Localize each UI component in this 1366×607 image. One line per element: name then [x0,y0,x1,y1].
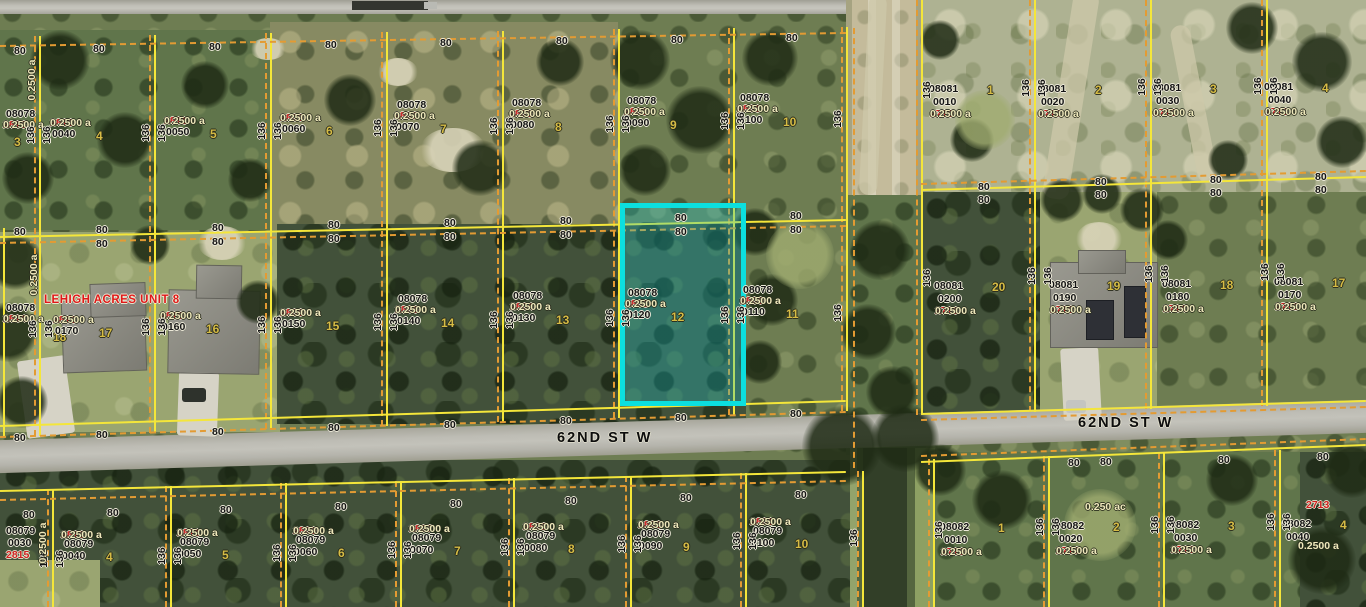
parcel-strap: 08081 [929,84,958,95]
dim-label-136: 136 [1035,518,1046,536]
parcel-area: 0.2500 a [510,302,551,313]
parcel-area: 0.2500 a [1050,305,1091,316]
dim-label-136: 136 [1282,513,1293,531]
dim-label-136: 136 [1276,263,1287,281]
dim-label-80: 80 [795,490,807,501]
parcel-lot-number: 4 [1322,82,1329,94]
dim-label-136: 136 [288,544,299,562]
parcel-lot-number: 19 [1107,280,1120,292]
tree-canopy [914,444,966,496]
parcel-code: 0180 [1166,292,1189,303]
dim-label-136: 136 [1021,79,1032,97]
parcel-area: 0.2500 a [395,305,436,316]
dim-label-136: 136 [1150,516,1161,534]
dim-label-80: 80 [23,510,35,521]
parcel-area: 0.2500 a [1298,541,1339,552]
parcel-area: 0.2500 a [935,306,976,317]
parcel-address: 2815 [6,550,29,561]
dim-label-136: 136 [257,316,268,334]
dim-label-80: 80 [1210,175,1222,186]
parcel-lot-number: 17 [99,327,112,339]
dim-label-136: 136 [387,541,398,559]
dim-label-136: 136 [42,126,53,144]
parcel-area: 0.2500 a [394,111,435,122]
dim-label-80: 80 [1095,190,1107,201]
parcel-area: 0.2500 a [280,308,321,319]
grass-glade [955,90,1015,150]
tree-canopy [840,304,896,360]
dim-label-136: 136 [732,532,743,550]
vehicle [352,1,428,10]
dim-label-136: 136 [403,541,414,559]
parcel-code: 0010 [933,97,956,108]
dim-label-136: 136 [44,320,55,338]
parcel-area: 0.2500 a [941,547,982,558]
dim-label-136: 136 [833,110,844,128]
dim-label-80: 80 [978,182,990,193]
parcel-strap: 08078 [398,294,427,305]
dim-label-80: 80 [560,230,572,241]
dim-label-136: 136 [157,318,168,336]
dim-label-136: 136 [1260,263,1271,281]
dim-label-136: 136 [720,306,731,324]
dim-label-80: 80 [444,218,456,229]
dim-label-136: 136 [1027,267,1038,285]
dim-label-80: 80 [14,227,26,238]
parcel-code: 0170 [55,326,78,337]
parcel-code: 0010 [944,535,967,546]
parcel-code: 0020 [1059,534,1082,545]
parcel-lot-number: 4 [106,551,113,563]
parcel-lot-number: 15 [326,320,339,332]
parcel-lot-number: 6 [338,547,345,559]
dim-label-80: 80 [14,433,26,444]
parcel-area: 0.2500 a [1275,302,1316,313]
dim-label-136: 136 [505,117,516,135]
dim-label-136: 136 [257,122,268,140]
dim-label-136: 136 [1037,79,1048,97]
tree-canopy [866,366,918,418]
tree-canopy [1206,454,1258,506]
parcel-area: 0.2500 a [1265,107,1306,118]
dim-label-80: 80 [1068,458,1080,469]
parcel-strap: 08079 [526,531,555,542]
dim-label-80: 80 [675,413,687,424]
terrain-region [0,560,100,607]
dim-label-136: 136 [605,115,616,133]
parcel-strap: 08078 [6,303,35,314]
dim-label-80: 80 [328,423,340,434]
parcel-strap: 08078 [397,100,426,111]
parcel-strap: 08079 [64,539,93,550]
parcel-area: 0.2500 a [1038,109,1079,120]
parcel-line-v [52,489,54,607]
parcel-code: 0030 [1156,96,1179,107]
tree-canopy [181,61,229,109]
dim-label-136: 136 [922,269,933,287]
dim-label-80: 80 [560,416,572,427]
parcel-line-v [1150,0,1152,409]
parcel-lot-number: 12 [671,311,684,323]
solar-panel [1124,286,1146,338]
dim-label-80: 80 [1095,177,1107,188]
dim-label-136: 136 [141,318,152,336]
parcel-code: 0200 [938,294,961,305]
dim-label-136: 136 [272,544,283,562]
parcel-lot-number: 5 [222,549,229,561]
setback-line-v [916,0,918,415]
house-roof [196,265,243,300]
dim-label-80: 80 [1100,457,1112,468]
dim-label-136: 136 [55,550,66,568]
parcel-code: 0030 [8,538,31,549]
dim-label-80: 80 [335,502,347,513]
dim-label-80: 80 [96,225,108,236]
area-label-rotated: 0.2500 a [29,255,40,296]
dim-label-136: 136 [833,304,844,322]
parcel-area: 0.2500 a [280,113,321,124]
dim-label-136: 136 [273,316,284,334]
dim-label-136: 136 [500,538,511,556]
tree-canopy [1226,2,1278,54]
parcel-lot-number: 11 [786,308,799,320]
dim-label-80: 80 [212,223,224,234]
parcel-strap: 08078 [628,288,657,299]
area-label-rotated: 0.2500 a [38,523,49,564]
dim-label-136: 136 [1137,78,1148,96]
dim-label-136: 136 [28,320,39,338]
parcel-code: 0020 [1041,97,1064,108]
parcel-strap: 08078 [740,93,769,104]
parcel-strap: 08081 [934,281,963,292]
dim-label-136: 136 [617,535,628,553]
dim-label-80: 80 [1218,455,1230,466]
tree-canopy [452,140,508,196]
tree-canopy [920,20,960,60]
parcel-area: 0.2500 a [3,120,44,131]
parcel-area: 0.2500 a [1056,546,1097,557]
misc-area-label: 0.250 ac [1085,502,1126,513]
map-canvas[interactable]: LEHIGH ACRES UNIT 8 62ND ST W 62ND ST W … [0,0,1366,607]
parcel-strap: 08078 [6,109,35,120]
parcel-lot-number: 8 [568,543,575,555]
dim-label-136: 136 [849,529,860,547]
parcel-area: 0.2500 a [1153,108,1194,119]
parcel-lot-number: 1 [987,84,994,96]
dim-label-136: 136 [157,547,168,565]
dim-label-80: 80 [440,38,452,49]
parcel-lot-number: 4 [1340,519,1347,531]
parcel-lot-number: 20 [992,281,1005,293]
parcel-lot-number: 13 [556,314,569,326]
parcel-lot-number: 3 [14,136,21,148]
tree-canopy [1316,116,1366,168]
dim-label-80: 80 [560,216,572,227]
parcel-lot-number: 9 [683,541,690,553]
parcel-line-v [1034,0,1036,412]
parcel-lot-number: 5 [210,128,217,140]
parcel-lot-number: 7 [454,545,461,557]
parcel-code: 0080 [524,543,547,554]
dim-label-136: 136 [1160,265,1171,283]
dim-label-80: 80 [328,220,340,231]
dim-label-80: 80 [790,225,802,236]
parcel-strap: 08079 [6,526,35,537]
dim-label-136: 136 [605,309,616,327]
dim-label-80: 80 [556,36,568,47]
dim-label-136: 136 [621,115,632,133]
dim-label-80: 80 [790,409,802,420]
parcel-code: 0040 [52,129,75,140]
dim-label-136: 136 [1043,267,1054,285]
dim-label-80: 80 [675,227,687,238]
dim-label-80: 80 [212,237,224,248]
dim-label-136: 136 [736,306,747,324]
parcel-lot-number: 1 [998,522,1005,534]
vehicle [424,2,437,9]
parcel-code: 0140 [397,316,420,327]
setback-line-v [1145,0,1147,409]
dim-label-136: 136 [1051,518,1062,536]
dim-label-80: 80 [96,430,108,441]
parcel-code: 0040 [1268,95,1291,106]
parcel-line-v [1266,0,1268,406]
dim-label-80: 80 [220,505,232,516]
dim-label-80: 80 [328,234,340,245]
dim-label-136: 136 [720,112,731,130]
dim-label-80: 80 [1315,172,1327,183]
parcel-strap: 08079 [296,535,325,546]
parcel-area: 0.2500 a [1163,304,1204,315]
dim-label-80: 80 [1317,452,1329,463]
parcel-lot-number: 3 [1210,83,1217,95]
dim-label-80: 80 [444,232,456,243]
dim-label-136: 136 [389,119,400,137]
dim-label-80: 80 [212,427,224,438]
plat-label: LEHIGH ACRES UNIT 8 [44,295,180,307]
dim-label-136: 136 [1166,516,1177,534]
parcel-line-v [921,0,923,415]
parcel-line-v [862,471,864,607]
dim-label-136: 136 [633,535,644,553]
dim-label-136: 136 [736,112,747,130]
parcel-lot-number: 16 [206,323,219,335]
dim-label-80: 80 [444,420,456,431]
dim-label-80: 80 [325,40,337,51]
parcel-code: 0050 [166,127,189,138]
parcel-lot-number: 10 [795,538,808,550]
dim-label-80: 80 [1315,185,1327,196]
parcel-lot-number: 14 [441,317,454,329]
dim-label-136: 136 [273,122,284,140]
dim-label-136: 136 [748,532,759,550]
dim-label-136: 136 [489,117,500,135]
parcel-lot-number: 10 [783,116,796,128]
parcel-lot-number: 9 [670,119,677,131]
tree-canopy [619,144,671,196]
tree-canopy [850,220,910,280]
house-roof [1078,250,1126,274]
parcel-code: 0060 [282,124,305,135]
sand-patch [378,58,418,86]
dim-label-136: 136 [373,119,384,137]
dim-label-136: 136 [1144,265,1155,283]
parcel-strap: 08078 [513,291,542,302]
area-label-rotated: 0.2500 a [27,60,38,101]
dim-label-80: 80 [209,42,221,53]
parcel-strap: 08079 [180,537,209,548]
parcel-lot-number: 17 [1332,277,1345,289]
dim-label-80: 80 [93,44,105,55]
parcel-line-v [3,228,5,437]
dim-label-136: 136 [1266,513,1277,531]
dim-label-80: 80 [978,195,990,206]
dim-label-136: 136 [1153,78,1164,96]
parcel-code: 0030 [1174,533,1197,544]
parcel-lot-number: 3 [1228,520,1235,532]
tree-canopy [1148,220,1188,260]
dim-label-136: 136 [389,313,400,331]
parcel-lot-number: 4 [96,130,103,142]
dim-label-136: 136 [489,311,500,329]
dim-label-136: 136 [621,309,632,327]
dim-label-136: 136 [26,126,37,144]
parcel-line-v [846,27,848,411]
parcel-code: 0190 [1053,293,1076,304]
parcel-area: 0.2500 a [53,315,94,326]
parcel-area: 0.2500 a [930,109,971,120]
setback-line-v [1029,0,1031,412]
setback-line-v [853,28,855,468]
parcel-address: 2713 [1306,500,1329,511]
dim-label-136: 136 [141,124,152,142]
parcel-lot-number: 2 [1095,84,1102,96]
dim-label-136: 136 [505,311,516,329]
dim-label-136: 136 [173,547,184,565]
parcel-area: 0.2500 a [1171,545,1212,556]
dim-label-80: 80 [96,239,108,250]
parcel-area: 0.2500 a [164,116,205,127]
dim-label-80: 80 [680,493,692,504]
dim-label-80: 80 [790,211,802,222]
dim-label-80: 80 [1210,188,1222,199]
dim-label-136: 136 [1269,77,1280,95]
parcel-area: 0.2500 a [50,118,91,129]
tree-canopy [324,74,376,126]
setback-line-v [1261,0,1263,406]
tree-canopy [2,152,54,204]
dim-label-136: 136 [157,124,168,142]
dim-label-80: 80 [450,499,462,510]
dim-label-80: 80 [671,35,683,46]
parcel-strap: 08078 [627,96,656,107]
dim-label-136: 136 [516,538,527,556]
parcel-lot-number: 18 [1220,279,1233,291]
dim-label-80: 80 [14,46,26,57]
dim-label-80: 80 [675,213,687,224]
parcel-lot-number: 6 [326,125,333,137]
car [182,388,206,402]
dim-label-80: 80 [786,33,798,44]
street-label-west: 62ND ST W [557,431,652,446]
street-label-east: 62ND ST W [1078,416,1173,431]
parcel-lot-number: 8 [555,121,562,133]
dim-label-80: 80 [107,508,119,519]
parcel-lot-number: 7 [440,123,447,135]
parcel-strap: 08079 [412,533,441,544]
dim-label-80: 80 [565,496,577,507]
tree-canopy [802,406,882,486]
parcel-strap: 08078 [743,285,772,296]
parcel-strap: 08078 [512,98,541,109]
dim-label-136: 136 [934,521,945,539]
parcel-code: 0170 [1278,290,1301,301]
parcel-strap: 08079 [641,529,670,540]
setback-line-v [928,459,930,607]
dim-label-136: 136 [922,81,933,99]
car [1066,400,1086,413]
dim-label-136: 136 [373,313,384,331]
parcel-code: 0150 [282,319,305,330]
dim-label-136: 136 [1253,77,1264,95]
parcel-lot-number: 2 [1113,521,1120,533]
